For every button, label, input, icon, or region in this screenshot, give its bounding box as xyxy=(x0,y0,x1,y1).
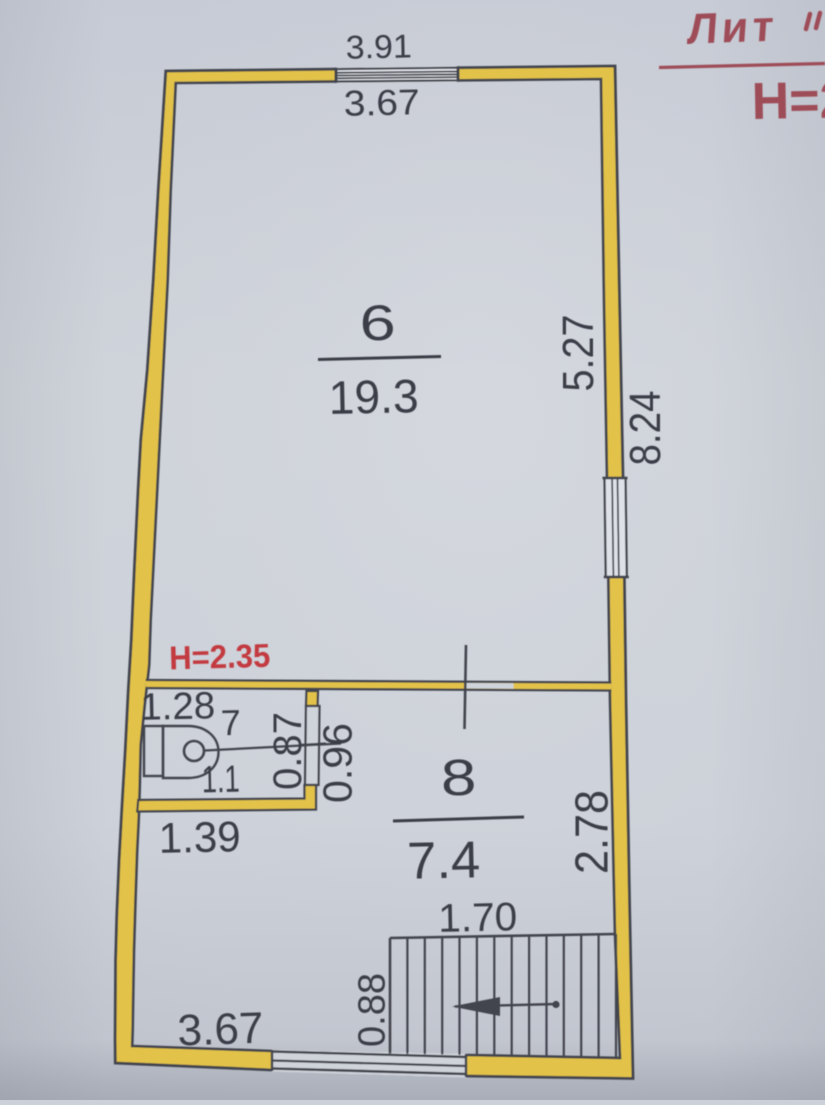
svg-text:Лит: Лит xyxy=(686,3,779,54)
svg-text:7.4: 7.4 xyxy=(407,831,481,891)
svg-text:1.70: 1.70 xyxy=(438,895,518,941)
svg-text:0.96: 0.96 xyxy=(314,723,360,803)
svg-text:8.24: 8.24 xyxy=(621,391,670,466)
svg-text:2.78: 2.78 xyxy=(566,790,618,874)
svg-text:H=2: H=2 xyxy=(751,71,825,131)
svg-text:0.88: 0.88 xyxy=(352,973,394,1047)
svg-text:0.87: 0.87 xyxy=(266,712,310,790)
svg-text:1.1: 1.1 xyxy=(201,759,240,802)
svg-text:7: 7 xyxy=(220,702,241,743)
svg-text:3.67: 3.67 xyxy=(343,81,420,124)
svg-text:H=2.35: H=2.35 xyxy=(169,637,271,677)
svg-text:19.3: 19.3 xyxy=(328,369,419,424)
svg-text:1.39: 1.39 xyxy=(158,813,241,863)
svg-text:8: 8 xyxy=(440,750,477,807)
svg-text:5.27: 5.27 xyxy=(554,315,603,392)
svg-text:1.28: 1.28 xyxy=(140,685,216,729)
svg-text:3.91: 3.91 xyxy=(345,27,412,65)
svg-text:3.67: 3.67 xyxy=(177,1004,265,1056)
svg-text:6: 6 xyxy=(359,296,396,352)
